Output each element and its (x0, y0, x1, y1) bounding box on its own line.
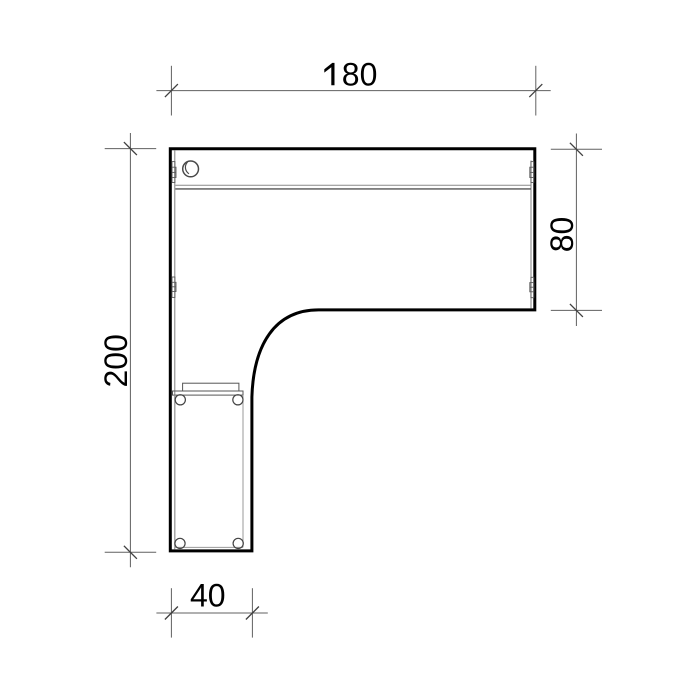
svg-text:80: 80 (342, 56, 378, 92)
svg-text:40: 40 (190, 577, 226, 613)
svg-text:200: 200 (98, 334, 134, 387)
svg-text:80: 80 (544, 217, 580, 253)
